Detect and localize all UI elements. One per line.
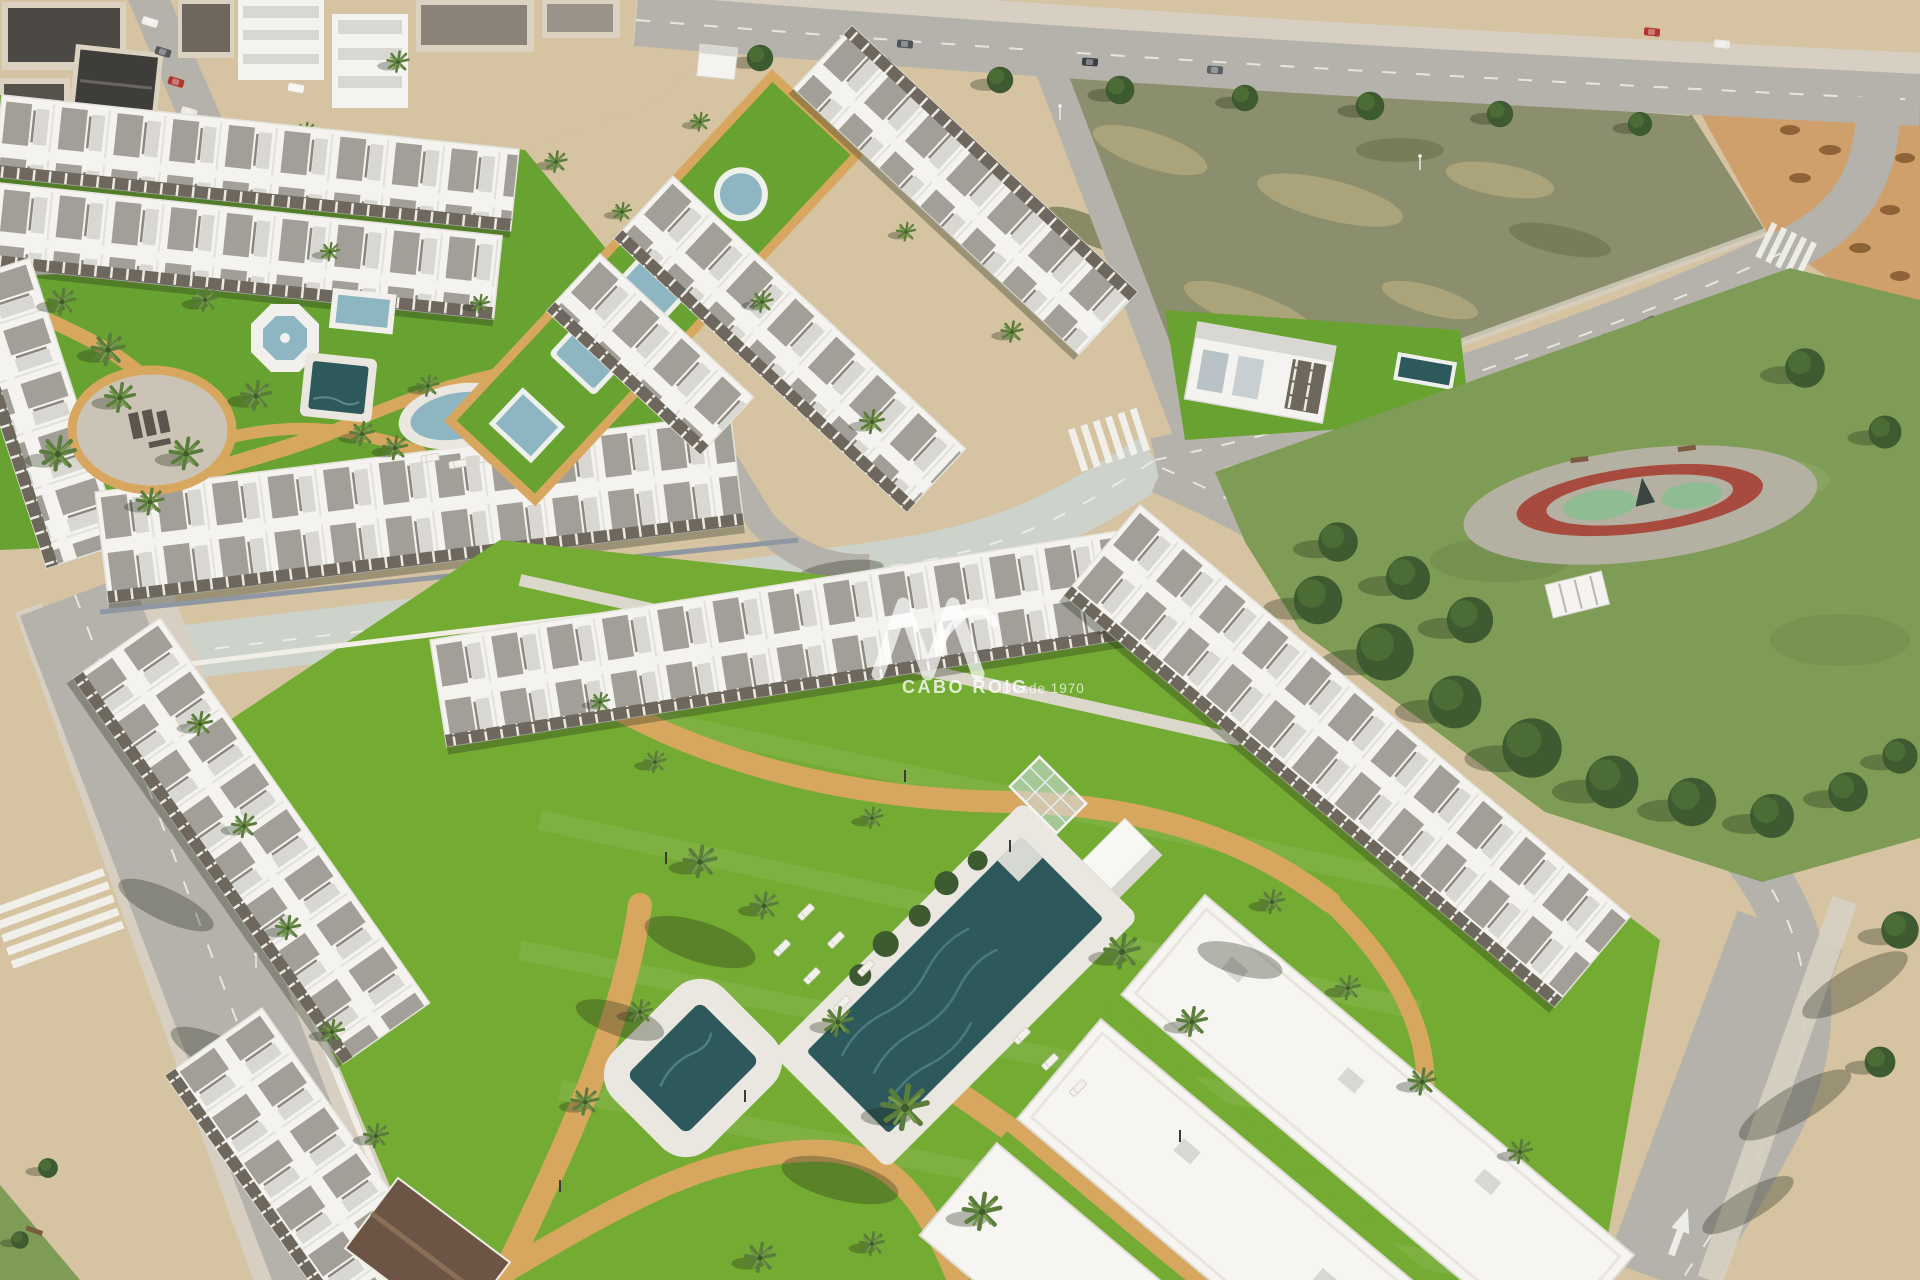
round-plaza — [72, 370, 232, 490]
square-pool-upper-left — [329, 288, 397, 334]
rect-pool-upper-left — [299, 352, 377, 423]
aerial-render-image: CABO ROIG Desde 1970 — [0, 0, 1920, 1280]
aerial-render-canvas: CABO ROIG Desde 1970 — [0, 0, 1920, 1280]
watermark-tagline-text: Desde 1970 — [1002, 681, 1085, 696]
courtyard-kiosk — [697, 44, 738, 80]
